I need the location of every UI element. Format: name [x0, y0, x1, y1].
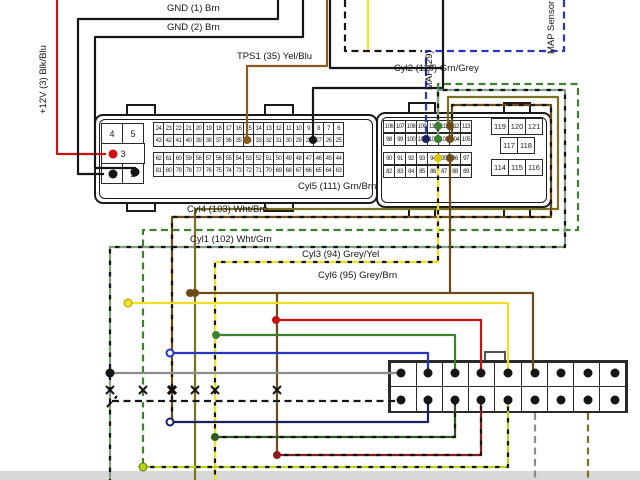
- label-cyl5: Cyl5 (111) Grn/Brn: [298, 181, 376, 192]
- cyl6-junction-dot2: [186, 289, 194, 297]
- label-cyl3: Cyl3 (94) Grey/Yel: [302, 249, 379, 260]
- label-12v: +12V (3) Blk/Blu: [38, 18, 49, 114]
- wire-igniter-red: [276, 320, 481, 370]
- pin103-dot: [446, 135, 454, 143]
- wire-igniter-blue: [170, 353, 428, 370]
- pin2-dot: [131, 168, 140, 177]
- label-cyl1: Cyl1 (102) Wht/Grn: [190, 234, 272, 245]
- pin101-dot: [422, 135, 430, 143]
- wire-tps1: [247, 0, 327, 137]
- blue-inline-connector: [167, 350, 174, 357]
- label-tps1: TPS1 (35) Yel/Blu: [237, 51, 312, 62]
- wire-12v: [57, 0, 106, 154]
- wire-igniter-darkred: [277, 402, 481, 455]
- red-junction-dot: [272, 316, 280, 324]
- green-junction-dot: [212, 331, 220, 339]
- wire-igniter-blkdash: [107, 396, 399, 407]
- label-cyl4: Cyl4 (103) Wht/Brn: [187, 204, 268, 215]
- label-cyl2: Cyl2 (110) Grn/Grey: [394, 63, 479, 74]
- label-cyl6: Cyl6 (95) Grey/Brn: [318, 270, 397, 281]
- wire-cyl4-overlay: [172, 105, 551, 422]
- yellow-junction-dot: [124, 299, 132, 307]
- pin1-dot: [109, 170, 118, 179]
- wire-igniter-darkgreen: [215, 402, 455, 437]
- pin29-dot: [309, 136, 317, 144]
- pin35-dot: [243, 136, 251, 144]
- wire-igniter-navy: [170, 402, 428, 422]
- yellowgreen-corner-dot: [139, 463, 147, 471]
- pin102-dot: [434, 135, 442, 143]
- wire-igniter-darkred-overlay: [277, 402, 481, 455]
- pin111-dot: [446, 122, 454, 130]
- pin94-dot: [434, 154, 442, 162]
- wire-igniter-yellow: [128, 303, 508, 370]
- wire-cyl4: [172, 105, 551, 422]
- grey-junction-dot: [106, 369, 115, 378]
- label-map-sensor: MAP Sensor: [546, 0, 557, 54]
- darkred-junction-dot: [273, 451, 281, 459]
- label-gnd2: GND (2) Brn: [167, 22, 220, 33]
- label-gnd1: GND (1) Brn: [167, 3, 220, 14]
- wire-layer: [0, 0, 640, 480]
- wire-igniter-darkgreen-overlay: [215, 402, 455, 437]
- navy-inline-connector: [167, 419, 174, 426]
- wire-igniter-yellowgreen: [143, 402, 508, 467]
- pin95-dot: [446, 154, 454, 162]
- sensor-box-dashed: [345, 0, 422, 51]
- wire-igniter-yellowgreen-overlay: [143, 402, 508, 467]
- pin110-dot: [434, 122, 442, 130]
- pin3-dot: [109, 150, 118, 159]
- wiring-diagram: +12V (3) Blk/Blu GND (1) Brn GND (2) Brn…: [0, 0, 640, 480]
- darkgreen-junction-dot: [211, 433, 219, 441]
- igniter-terminal-dots: [397, 369, 620, 405]
- crossing-marks: [106, 386, 281, 394]
- label-maf: MAF (29): [424, 6, 435, 90]
- sensor-box-dashed-under: [345, 0, 422, 51]
